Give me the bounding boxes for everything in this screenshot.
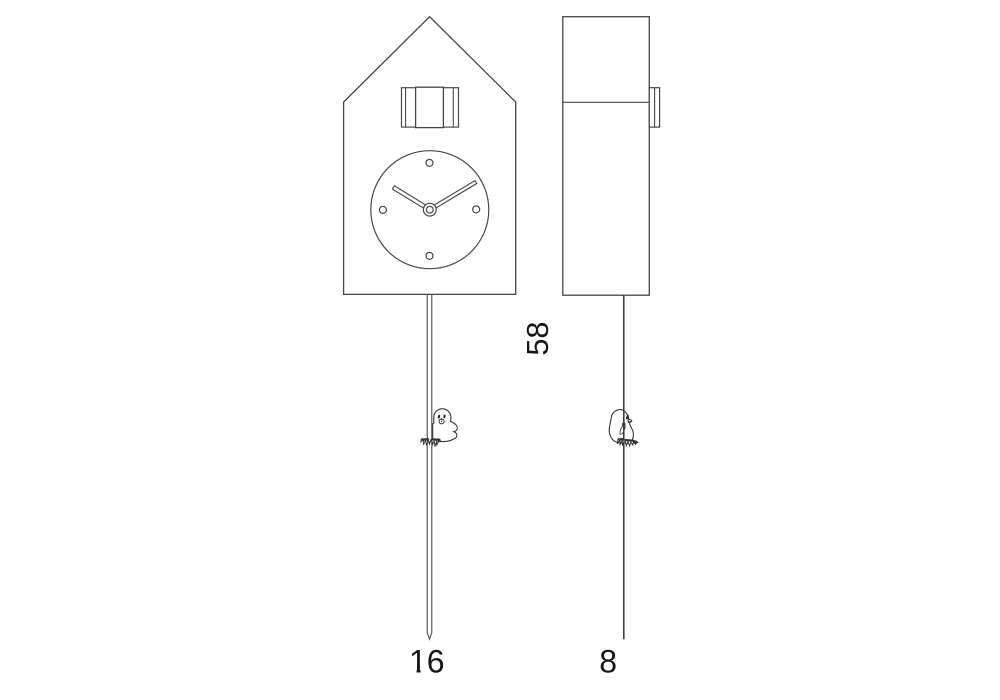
svg-text:58: 58: [520, 322, 555, 356]
svg-text:8: 8: [599, 643, 617, 679]
svg-text:16: 16: [409, 643, 445, 679]
